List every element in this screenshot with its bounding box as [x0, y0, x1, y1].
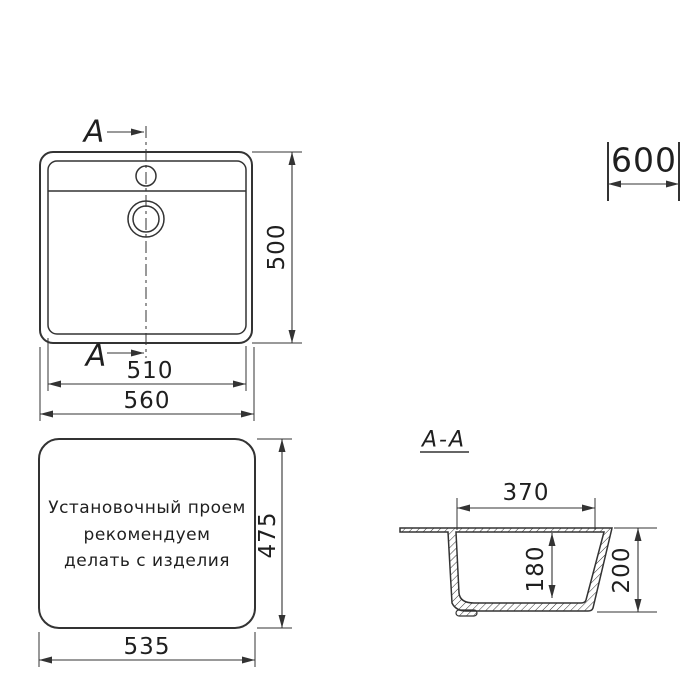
dim-180-value: 180	[523, 546, 549, 593]
technical-drawing-sheet: A A 500 510 560 600	[0, 0, 700, 700]
sink-drawing: A A 500 510 560 600	[0, 0, 700, 700]
dim-510-value: 510	[127, 358, 174, 384]
dim-600-value: 600	[611, 141, 677, 180]
drain-boss	[456, 610, 477, 616]
opening-note-line-1: Установочный проем	[48, 498, 246, 518]
opening-note-line-2: рекомендуем	[84, 525, 211, 545]
dim-535-value: 535	[124, 634, 171, 660]
dim-370-value: 370	[503, 480, 550, 506]
dim-500-value: 500	[264, 224, 290, 271]
opening-note-line-3: делать с изделия	[64, 551, 230, 571]
dim-200-value: 200	[609, 547, 635, 594]
dim-560-value: 560	[124, 388, 171, 414]
dim-475-value: 475	[255, 512, 281, 559]
section-label-bottom: A	[84, 339, 107, 374]
section-title: A-A	[420, 428, 466, 453]
section-label-top: A	[82, 115, 105, 150]
